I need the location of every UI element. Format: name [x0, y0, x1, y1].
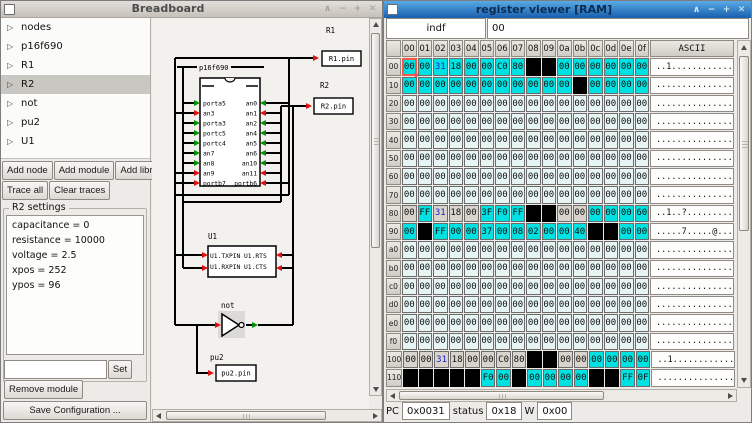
register-cell-50-05[interactable]: 00	[480, 150, 495, 167]
register-cell-90-04[interactable]: 00	[464, 223, 479, 240]
register-cell-00-03[interactable]: 18	[449, 58, 464, 75]
scroll-down-arrow[interactable]	[738, 375, 749, 386]
register-cell-c0-03[interactable]: 00	[449, 278, 464, 295]
expander-icon[interactable]: ▷	[7, 42, 15, 51]
register-cell-70-00[interactable]: 00	[402, 186, 417, 203]
breadboard-canvas[interactable]: p16f690 porta5an3porta3portc5portc4an7an…	[152, 18, 369, 409]
register-cell-f0-09[interactable]: 00	[542, 333, 557, 350]
register-cell-20-08[interactable]: 00	[526, 95, 541, 112]
register-cell-60-01[interactable]: 00	[418, 168, 433, 185]
save-configuration-button[interactable]: Save Configuration ...	[3, 401, 147, 420]
register-cell-70-04[interactable]: 00	[464, 186, 479, 203]
register-vscroll-thumb[interactable]	[739, 56, 749, 231]
register-cell-d0-0f[interactable]: 00	[635, 296, 650, 313]
register-cell-20-0d[interactable]: 00	[604, 95, 619, 112]
register-cell-a0-06[interactable]: 00	[495, 241, 510, 258]
register-cell-110-02[interactable]	[434, 369, 449, 386]
register-cell-30-0a[interactable]: 00	[557, 113, 572, 130]
register-cell-c0-0f[interactable]: 00	[635, 278, 650, 295]
shade-button-icon[interactable]	[690, 3, 703, 16]
register-cell-50-02[interactable]: 00	[433, 150, 448, 167]
register-cell-b0-0a[interactable]: 00	[557, 260, 572, 277]
register-cell-c0-00[interactable]: 00	[402, 278, 417, 295]
register-cell-e0-03[interactable]: 00	[449, 314, 464, 331]
register-cell-f0-04[interactable]: 00	[464, 333, 479, 350]
register-cell-110-0c[interactable]	[589, 369, 604, 386]
register-cell-60-09[interactable]: 00	[542, 168, 557, 185]
register-cell-f0-05[interactable]: 00	[480, 333, 495, 350]
register-cell-70-01[interactable]: 00	[418, 186, 433, 203]
register-cell-d0-0b[interactable]: 00	[573, 296, 588, 313]
register-cell-100-04[interactable]: 00	[465, 351, 480, 368]
register-cell-20-03[interactable]: 00	[449, 95, 464, 112]
register-cell-a0-03[interactable]: 00	[449, 241, 464, 258]
register-cell-c0-0a[interactable]: 00	[557, 278, 572, 295]
register-cell-70-05[interactable]: 00	[480, 186, 495, 203]
register-cell-90-06[interactable]: 00	[495, 223, 510, 240]
register-cell-c0-0e[interactable]: 00	[619, 278, 634, 295]
register-cell-b0-0c[interactable]: 00	[588, 260, 603, 277]
ascii-cell-20[interactable]: ................	[650, 95, 734, 112]
register-cell-d0-02[interactable]: 00	[433, 296, 448, 313]
register-cell-d0-0c[interactable]: 00	[588, 296, 603, 313]
register-cell-d0-05[interactable]: 00	[480, 296, 495, 313]
register-cell-90-0b[interactable]: 40	[573, 223, 588, 240]
module-r1[interactable]: R1 R1.pin	[307, 26, 361, 66]
register-cell-60-02[interactable]: 00	[433, 168, 448, 185]
register-cell-c0-08[interactable]: 00	[526, 278, 541, 295]
register-cell-40-00[interactable]: 00	[402, 131, 417, 148]
ascii-cell-a0[interactable]: ................	[650, 241, 734, 258]
ascii-cell-b0[interactable]: ................	[650, 260, 734, 277]
register-cell-c0-0c[interactable]: 00	[588, 278, 603, 295]
register-cell-30-05[interactable]: 00	[480, 113, 495, 130]
tree-item-R2[interactable]: ▷R2	[1, 75, 150, 94]
ascii-cell-30[interactable]: ................	[650, 113, 734, 130]
ascii-cell-70[interactable]: ................	[650, 186, 734, 203]
register-cell-110-08[interactable]: 00	[527, 369, 542, 386]
register-cell-70-0b[interactable]: 00	[573, 186, 588, 203]
register-cell-30-0b[interactable]: 00	[573, 113, 588, 130]
register-cell-80-01[interactable]: FF	[418, 205, 433, 222]
register-cell-100-07[interactable]: 80	[512, 351, 527, 368]
register-cell-30-03[interactable]: 00	[449, 113, 464, 130]
register-cell-60-00[interactable]: 00	[402, 168, 417, 185]
register-cell-110-0d[interactable]	[605, 369, 620, 386]
register-cell-100-03[interactable]: 18	[450, 351, 465, 368]
register-cell-20-0f[interactable]: 00	[635, 95, 650, 112]
register-cell-f0-0d[interactable]: 00	[604, 333, 619, 350]
register-cell-d0-06[interactable]: 00	[495, 296, 510, 313]
register-cell-100-00[interactable]: 00	[403, 351, 418, 368]
register-cell-40-0b[interactable]: 00	[573, 131, 588, 148]
register-cell-b0-03[interactable]: 00	[449, 260, 464, 277]
trace-all-button[interactable]: Trace all	[2, 181, 48, 200]
register-cell-20-07[interactable]: 00	[511, 95, 526, 112]
register-cell-60-03[interactable]: 00	[449, 168, 464, 185]
register-cell-50-07[interactable]: 00	[511, 150, 526, 167]
register-cell-90-0d[interactable]	[604, 223, 619, 240]
register-cell-110-03[interactable]	[450, 369, 465, 386]
register-cell-80-03[interactable]: 18	[449, 205, 464, 222]
register-cell-a0-02[interactable]: 00	[433, 241, 448, 258]
tree-item-pu2[interactable]: ▷pu2	[1, 113, 150, 132]
register-cell-80-00[interactable]: 00	[402, 205, 417, 222]
register-cell-e0-0a[interactable]: 00	[557, 314, 572, 331]
register-cell-60-0f[interactable]: 00	[635, 168, 650, 185]
register-cell-10-0c[interactable]: 00	[588, 77, 603, 94]
register-cell-d0-03[interactable]: 00	[449, 296, 464, 313]
register-cell-e0-09[interactable]: 00	[542, 314, 557, 331]
register-cell-70-0c[interactable]: 00	[588, 186, 603, 203]
register-cell-00-08[interactable]	[526, 58, 541, 75]
module-r2[interactable]: R2 R2.pin	[300, 81, 353, 114]
register-cell-110-06[interactable]: 00	[496, 369, 511, 386]
ascii-cell-f0[interactable]: ................	[650, 333, 734, 350]
register-cell-90-08[interactable]: 02	[526, 223, 541, 240]
register-cell-60-0b[interactable]: 00	[573, 168, 588, 185]
register-cell-a0-05[interactable]: 00	[480, 241, 495, 258]
register-cell-80-08[interactable]	[526, 205, 541, 222]
register-cell-80-06[interactable]: F0	[495, 205, 510, 222]
register-cell-60-07[interactable]: 00	[511, 168, 526, 185]
register-vertical-scrollbar[interactable]	[737, 40, 751, 388]
register-cell-f0-08[interactable]: 00	[526, 333, 541, 350]
expander-icon[interactable]: ▷	[7, 61, 15, 70]
scroll-up-arrow[interactable]	[370, 19, 381, 30]
register-cell-d0-0d[interactable]: 00	[604, 296, 619, 313]
register-cell-40-0a[interactable]: 00	[557, 131, 572, 148]
register-cell-f0-01[interactable]: 00	[418, 333, 433, 350]
register-cell-40-0e[interactable]: 00	[619, 131, 634, 148]
register-cell-40-06[interactable]: 00	[495, 131, 510, 148]
register-cell-b0-0f[interactable]: 00	[635, 260, 650, 277]
register-cell-50-08[interactable]: 00	[526, 150, 541, 167]
register-cell-f0-0b[interactable]: 00	[573, 333, 588, 350]
ascii-cell-100[interactable]: ..1.............	[651, 351, 735, 368]
register-cell-50-0a[interactable]: 00	[557, 150, 572, 167]
ascii-cell-90[interactable]: .....7.....@....	[650, 223, 734, 240]
register-cell-e0-04[interactable]: 00	[464, 314, 479, 331]
register-cell-100-06[interactable]: C0	[496, 351, 511, 368]
tree-item-R1[interactable]: ▷R1	[1, 56, 150, 75]
attribute-value-input[interactable]	[4, 360, 107, 379]
register-cell-100-0e[interactable]: 00	[620, 351, 635, 368]
register-cell-10-07[interactable]: 00	[511, 77, 526, 94]
register-cell-e0-05[interactable]: 00	[480, 314, 495, 331]
register-cell-70-0f[interactable]: 00	[635, 186, 650, 203]
register-cell-20-0a[interactable]: 00	[557, 95, 572, 112]
attribute-list[interactable]: capacitance = 0resistance = 10000voltage…	[6, 215, 144, 355]
register-cell-110-0b[interactable]: 00	[574, 369, 589, 386]
register-cell-a0-0e[interactable]: 00	[619, 241, 634, 258]
register-cell-100-08[interactable]	[527, 351, 542, 368]
register-cell-e0-06[interactable]: 00	[495, 314, 510, 331]
register-cell-70-0d[interactable]: 00	[604, 186, 619, 203]
register-cell-30-0f[interactable]: 00	[635, 113, 650, 130]
register-cell-10-04[interactable]: 00	[464, 77, 479, 94]
register-cell-100-05[interactable]: 00	[481, 351, 496, 368]
minimize-button-icon[interactable]	[336, 3, 349, 16]
register-cell-100-0d[interactable]: 00	[605, 351, 620, 368]
module-pu2[interactable]: pu2 pu2.pin	[202, 353, 256, 381]
register-cell-70-0e[interactable]: 00	[619, 186, 634, 203]
register-cell-40-0c[interactable]: 00	[588, 131, 603, 148]
attribute-line[interactable]: capacitance = 0	[7, 216, 143, 231]
register-cell-50-09[interactable]: 00	[542, 150, 557, 167]
register-cell-10-06[interactable]: 00	[495, 77, 510, 94]
register-cell-100-0a[interactable]: 00	[558, 351, 573, 368]
register-cell-e0-01[interactable]: 00	[418, 314, 433, 331]
register-cell-70-0a[interactable]: 00	[557, 186, 572, 203]
maximize-button-icon[interactable]	[351, 3, 364, 16]
register-cell-00-0c[interactable]: 00	[588, 58, 603, 75]
register-cell-d0-0e[interactable]: 00	[619, 296, 634, 313]
register-cell-b0-09[interactable]: 00	[542, 260, 557, 277]
minimize-button-icon[interactable]	[705, 3, 718, 16]
expander-icon[interactable]: ▷	[7, 137, 15, 146]
register-cell-50-03[interactable]: 00	[449, 150, 464, 167]
register-cell-f0-0f[interactable]: 00	[635, 333, 650, 350]
scroll-down-arrow[interactable]	[370, 384, 381, 395]
register-cell-40-08[interactable]: 00	[526, 131, 541, 148]
register-cell-10-0f[interactable]: 00	[635, 77, 650, 94]
canvas-vscroll-thumb[interactable]	[371, 33, 380, 248]
register-cell-f0-02[interactable]: 00	[433, 333, 448, 350]
register-cell-00-0a[interactable]: 00	[557, 58, 572, 75]
register-cell-c0-0b[interactable]: 00	[573, 278, 588, 295]
register-cell-e0-08[interactable]: 00	[526, 314, 541, 331]
register-cell-90-0c[interactable]	[588, 223, 603, 240]
register-cell-90-07[interactable]: 08	[511, 223, 526, 240]
register-cell-40-0f[interactable]: 00	[635, 131, 650, 148]
register-cell-d0-04[interactable]: 00	[464, 296, 479, 313]
add-node-button[interactable]: Add node	[2, 161, 53, 180]
register-cell-a0-01[interactable]: 00	[418, 241, 433, 258]
register-cell-60-05[interactable]: 00	[480, 168, 495, 185]
register-cell-10-0e[interactable]: 00	[619, 77, 634, 94]
register-cell-10-08[interactable]: 00	[526, 77, 541, 94]
register-cell-100-09[interactable]	[543, 351, 558, 368]
register-cell-b0-0b[interactable]: 00	[573, 260, 588, 277]
register-cell-30-00[interactable]: 00	[402, 113, 417, 130]
register-cell-110-0f[interactable]: 0F	[636, 369, 651, 386]
register-cell-60-04[interactable]: 00	[464, 168, 479, 185]
register-cell-00-0e[interactable]: 00	[619, 58, 634, 75]
register-cell-e0-07[interactable]: 00	[511, 314, 526, 331]
remove-module-button[interactable]: Remove module	[4, 380, 83, 399]
register-cell-00-06[interactable]: C0	[495, 58, 510, 75]
register-cell-c0-05[interactable]: 00	[480, 278, 495, 295]
register-cell-50-06[interactable]: 00	[495, 150, 510, 167]
register-cell-10-0b[interactable]	[573, 77, 588, 94]
register-cell-80-0c[interactable]: 00	[588, 205, 603, 222]
ascii-cell-c0[interactable]: ................	[650, 278, 734, 295]
register-cell-40-03[interactable]: 00	[449, 131, 464, 148]
register-cell-80-0d[interactable]: 00	[604, 205, 619, 222]
register-name-entry[interactable]: indf	[386, 18, 486, 39]
scroll-left-arrow[interactable]	[153, 410, 164, 421]
register-cell-b0-01[interactable]: 00	[418, 260, 433, 277]
close-button-icon[interactable]	[735, 3, 748, 16]
register-cell-100-01[interactable]: 00	[419, 351, 434, 368]
register-cell-b0-05[interactable]: 00	[480, 260, 495, 277]
register-cell-10-01[interactable]: 00	[418, 77, 433, 94]
register-cell-80-0f[interactable]: 60	[635, 205, 650, 222]
register-cell-70-07[interactable]: 00	[511, 186, 526, 203]
register-cell-30-0d[interactable]: 00	[604, 113, 619, 130]
register-cell-00-01[interactable]: 00	[418, 58, 433, 75]
attribute-line[interactable]: resistance = 10000	[7, 231, 143, 246]
register-cell-110-0e[interactable]: FF	[620, 369, 635, 386]
register-cell-c0-0d[interactable]: 00	[604, 278, 619, 295]
register-cell-90-09[interactable]: 00	[542, 223, 557, 240]
register-cell-20-06[interactable]: 00	[495, 95, 510, 112]
register-cell-30-09[interactable]: 00	[542, 113, 557, 130]
register-cell-90-0f[interactable]: 00	[635, 223, 650, 240]
register-cell-10-09[interactable]: 00	[542, 77, 557, 94]
register-cell-c0-04[interactable]: 00	[464, 278, 479, 295]
register-cell-e0-0d[interactable]: 00	[604, 314, 619, 331]
ascii-cell-00[interactable]: ..1.............	[650, 58, 734, 75]
register-cell-80-07[interactable]: FF	[511, 205, 526, 222]
shade-button-icon[interactable]	[321, 3, 334, 16]
register-cell-110-01[interactable]	[419, 369, 434, 386]
register-cell-40-0d[interactable]: 00	[604, 131, 619, 148]
register-cell-110-07[interactable]	[512, 369, 527, 386]
canvas-vertical-scrollbar[interactable]	[369, 18, 382, 396]
register-cell-30-0c[interactable]: 00	[588, 113, 603, 130]
register-cell-70-09[interactable]: 00	[542, 186, 557, 203]
register-cell-b0-04[interactable]: 00	[464, 260, 479, 277]
register-cell-a0-09[interactable]: 00	[542, 241, 557, 258]
register-cell-90-05[interactable]: 37	[480, 223, 495, 240]
register-cell-70-08[interactable]: 00	[526, 186, 541, 203]
register-cell-10-02[interactable]: 00	[433, 77, 448, 94]
register-cell-b0-02[interactable]: 00	[433, 260, 448, 277]
expander-icon[interactable]: ▷	[7, 118, 15, 127]
register-cell-50-00[interactable]: 00	[402, 150, 417, 167]
register-cell-b0-07[interactable]: 00	[511, 260, 526, 277]
register-hscroll-thumb[interactable]	[399, 391, 604, 400]
register-cell-a0-04[interactable]: 00	[464, 241, 479, 258]
ascii-cell-d0[interactable]: ................	[650, 296, 734, 313]
register-cell-90-0a[interactable]: 00	[557, 223, 572, 240]
register-cell-30-01[interactable]: 00	[418, 113, 433, 130]
register-cell-90-02[interactable]: FF	[433, 223, 448, 240]
register-cell-b0-0e[interactable]: 00	[619, 260, 634, 277]
register-cell-40-02[interactable]: 00	[433, 131, 448, 148]
register-cell-00-0d[interactable]: 00	[604, 58, 619, 75]
register-cell-40-07[interactable]: 00	[511, 131, 526, 148]
register-cell-30-0e[interactable]: 00	[619, 113, 634, 130]
attribute-line[interactable]: voltage = 2.5	[7, 246, 143, 261]
ascii-cell-10[interactable]: ................	[650, 77, 734, 94]
register-cell-10-00[interactable]: 00	[402, 77, 417, 94]
register-cell-10-05[interactable]: 00	[480, 77, 495, 94]
register-cell-100-0b[interactable]: 00	[574, 351, 589, 368]
register-cell-00-00[interactable]: 00	[402, 58, 417, 75]
register-cell-d0-08[interactable]: 00	[526, 296, 541, 313]
register-cell-00-0f[interactable]: 00	[635, 58, 650, 75]
module-u1[interactable]: U1 U1.TXPIN U1.RTS U1.RXPIN U1.CTS	[196, 232, 282, 277]
register-cell-c0-09[interactable]: 00	[542, 278, 557, 295]
register-cell-10-03[interactable]: 00	[449, 77, 464, 94]
clear-traces-button[interactable]: Clear traces	[49, 181, 110, 200]
register-cell-20-0e[interactable]: 00	[619, 95, 634, 112]
register-cell-50-01[interactable]: 00	[418, 150, 433, 167]
register-cell-a0-0f[interactable]: 00	[635, 241, 650, 258]
tree-item-not[interactable]: ▷not	[1, 94, 150, 113]
register-cell-e0-00[interactable]: 00	[402, 314, 417, 331]
register-cell-80-04[interactable]: 00	[464, 205, 479, 222]
register-cell-80-0e[interactable]: 00	[619, 205, 634, 222]
register-cell-f0-0a[interactable]: 00	[557, 333, 572, 350]
register-cell-a0-07[interactable]: 00	[511, 241, 526, 258]
register-cell-20-09[interactable]: 00	[542, 95, 557, 112]
register-cell-a0-0d[interactable]: 00	[604, 241, 619, 258]
register-cell-f0-00[interactable]: 00	[402, 333, 417, 350]
expander-icon[interactable]: ▷	[7, 23, 15, 32]
ascii-cell-40[interactable]: ................	[650, 131, 734, 148]
register-value-entry[interactable]: 00	[487, 18, 749, 39]
register-cell-60-0a[interactable]: 00	[557, 168, 572, 185]
scroll-up-arrow[interactable]	[738, 42, 749, 53]
breadboard-titlebar[interactable]: Breadboard	[1, 1, 382, 18]
register-cell-e0-0f[interactable]: 00	[635, 314, 650, 331]
register-cell-e0-0e[interactable]: 00	[619, 314, 634, 331]
register-cell-10-0d[interactable]: 00	[604, 77, 619, 94]
register-cell-b0-0d[interactable]: 00	[604, 260, 619, 277]
register-cell-80-05[interactable]: 3F	[480, 205, 495, 222]
register-cell-00-05[interactable]: 00	[480, 58, 495, 75]
register-cell-e0-02[interactable]: 00	[433, 314, 448, 331]
register-cell-90-01[interactable]	[418, 223, 433, 240]
register-cell-20-05[interactable]: 00	[480, 95, 495, 112]
register-cell-50-0f[interactable]: 00	[635, 150, 650, 167]
register-cell-a0-0c[interactable]: 00	[588, 241, 603, 258]
register-cell-b0-06[interactable]: 00	[495, 260, 510, 277]
register-cell-40-05[interactable]: 00	[480, 131, 495, 148]
register-cell-110-04[interactable]	[465, 369, 480, 386]
register-cell-e0-0b[interactable]: 00	[573, 314, 588, 331]
register-cell-f0-06[interactable]: 00	[495, 333, 510, 350]
register-cell-90-03[interactable]: 00	[449, 223, 464, 240]
register-cell-90-0e[interactable]: 00	[619, 223, 634, 240]
register-cell-a0-00[interactable]: 00	[402, 241, 417, 258]
register-cell-10-0a[interactable]: 00	[557, 77, 572, 94]
register-cell-00-09[interactable]	[542, 58, 557, 75]
register-cell-110-05[interactable]: F0	[481, 369, 496, 386]
register-cell-80-0a[interactable]: 00	[557, 205, 572, 222]
register-cell-40-01[interactable]: 00	[418, 131, 433, 148]
register-cell-60-0c[interactable]: 00	[588, 168, 603, 185]
tree-item-nodes[interactable]: ▷nodes	[1, 18, 150, 37]
register-cell-30-08[interactable]: 00	[526, 113, 541, 130]
attribute-line[interactable]: ypos = 96	[7, 276, 143, 291]
register-cell-60-0e[interactable]: 00	[619, 168, 634, 185]
register-cell-60-08[interactable]: 00	[526, 168, 541, 185]
register-cell-d0-09[interactable]: 00	[542, 296, 557, 313]
register-cell-80-02[interactable]: 31	[433, 205, 448, 222]
register-cell-00-02[interactable]: 31	[433, 58, 448, 75]
register-cell-30-04[interactable]: 00	[464, 113, 479, 130]
register-cell-110-09[interactable]: 00	[543, 369, 558, 386]
register-cell-50-0b[interactable]: 00	[573, 150, 588, 167]
register-cell-100-0f[interactable]: 00	[636, 351, 651, 368]
maximize-button-icon[interactable]	[720, 3, 733, 16]
register-cell-c0-07[interactable]: 00	[511, 278, 526, 295]
